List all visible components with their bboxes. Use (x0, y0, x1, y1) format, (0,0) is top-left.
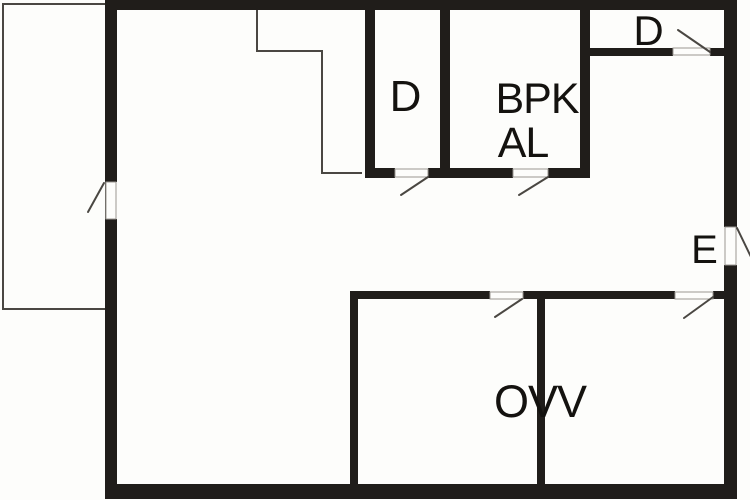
door-swing-terrace (88, 183, 104, 212)
wall-bpk-right (580, 10, 590, 178)
threshold-terrace-door (106, 182, 116, 219)
wall-entry-bottom-stub (710, 48, 724, 56)
wall-exterior-right-lower (724, 265, 737, 498)
floor-plan-canvas: D BPK AL D E OVV (0, 0, 750, 500)
door-swing-bpk (519, 177, 548, 195)
room-label-bpk: BPK (495, 75, 579, 123)
room-label-entrance-e: E (691, 228, 717, 272)
wall-lower-rooms-top-a (350, 291, 490, 299)
threshold-bpk-door (513, 169, 548, 177)
kitchen-counter-outline (257, 10, 362, 173)
wall-exterior-right-upper (724, 0, 737, 227)
door-swing-entrance-e (737, 228, 750, 259)
room-label-entry-d: D (633, 7, 662, 54)
wall-lower-rooms-top-b (523, 291, 675, 299)
wall-exterior-left-lower (105, 219, 117, 498)
threshold-lower-left-door (490, 292, 523, 299)
floor-plan: D BPK AL D E OVV (0, 0, 750, 500)
wall-lower-room-left (350, 291, 358, 484)
threshold-entrance-e-door (725, 227, 736, 265)
door-swing-lower-left (495, 299, 522, 317)
wall-bedroom-bpk-divider (440, 10, 450, 178)
door-thresholds (106, 48, 736, 299)
room-label-al: AL (498, 119, 549, 167)
threshold-ovv-door (675, 292, 713, 299)
room-label-bedroom-d: D (390, 72, 421, 121)
wall-bedroom-bottom-b (428, 168, 513, 178)
wall-exterior-bottom (105, 484, 737, 499)
wall-bpk-bottom (548, 168, 590, 178)
door-swing-bedroom (401, 177, 428, 195)
exterior-walls (105, 0, 737, 499)
door-swing-ovv (684, 297, 713, 318)
wall-lower-rooms-top-c (713, 291, 724, 299)
room-labels: D BPK AL D E OVV (390, 7, 717, 427)
threshold-bedroom-door (395, 169, 428, 177)
wall-exterior-left-upper (105, 0, 117, 182)
wall-bedroom-left (365, 10, 375, 178)
terrace-outline (3, 4, 106, 309)
room-label-ovv: OVV (494, 376, 587, 427)
wall-bedroom-bottom-a (365, 168, 395, 178)
